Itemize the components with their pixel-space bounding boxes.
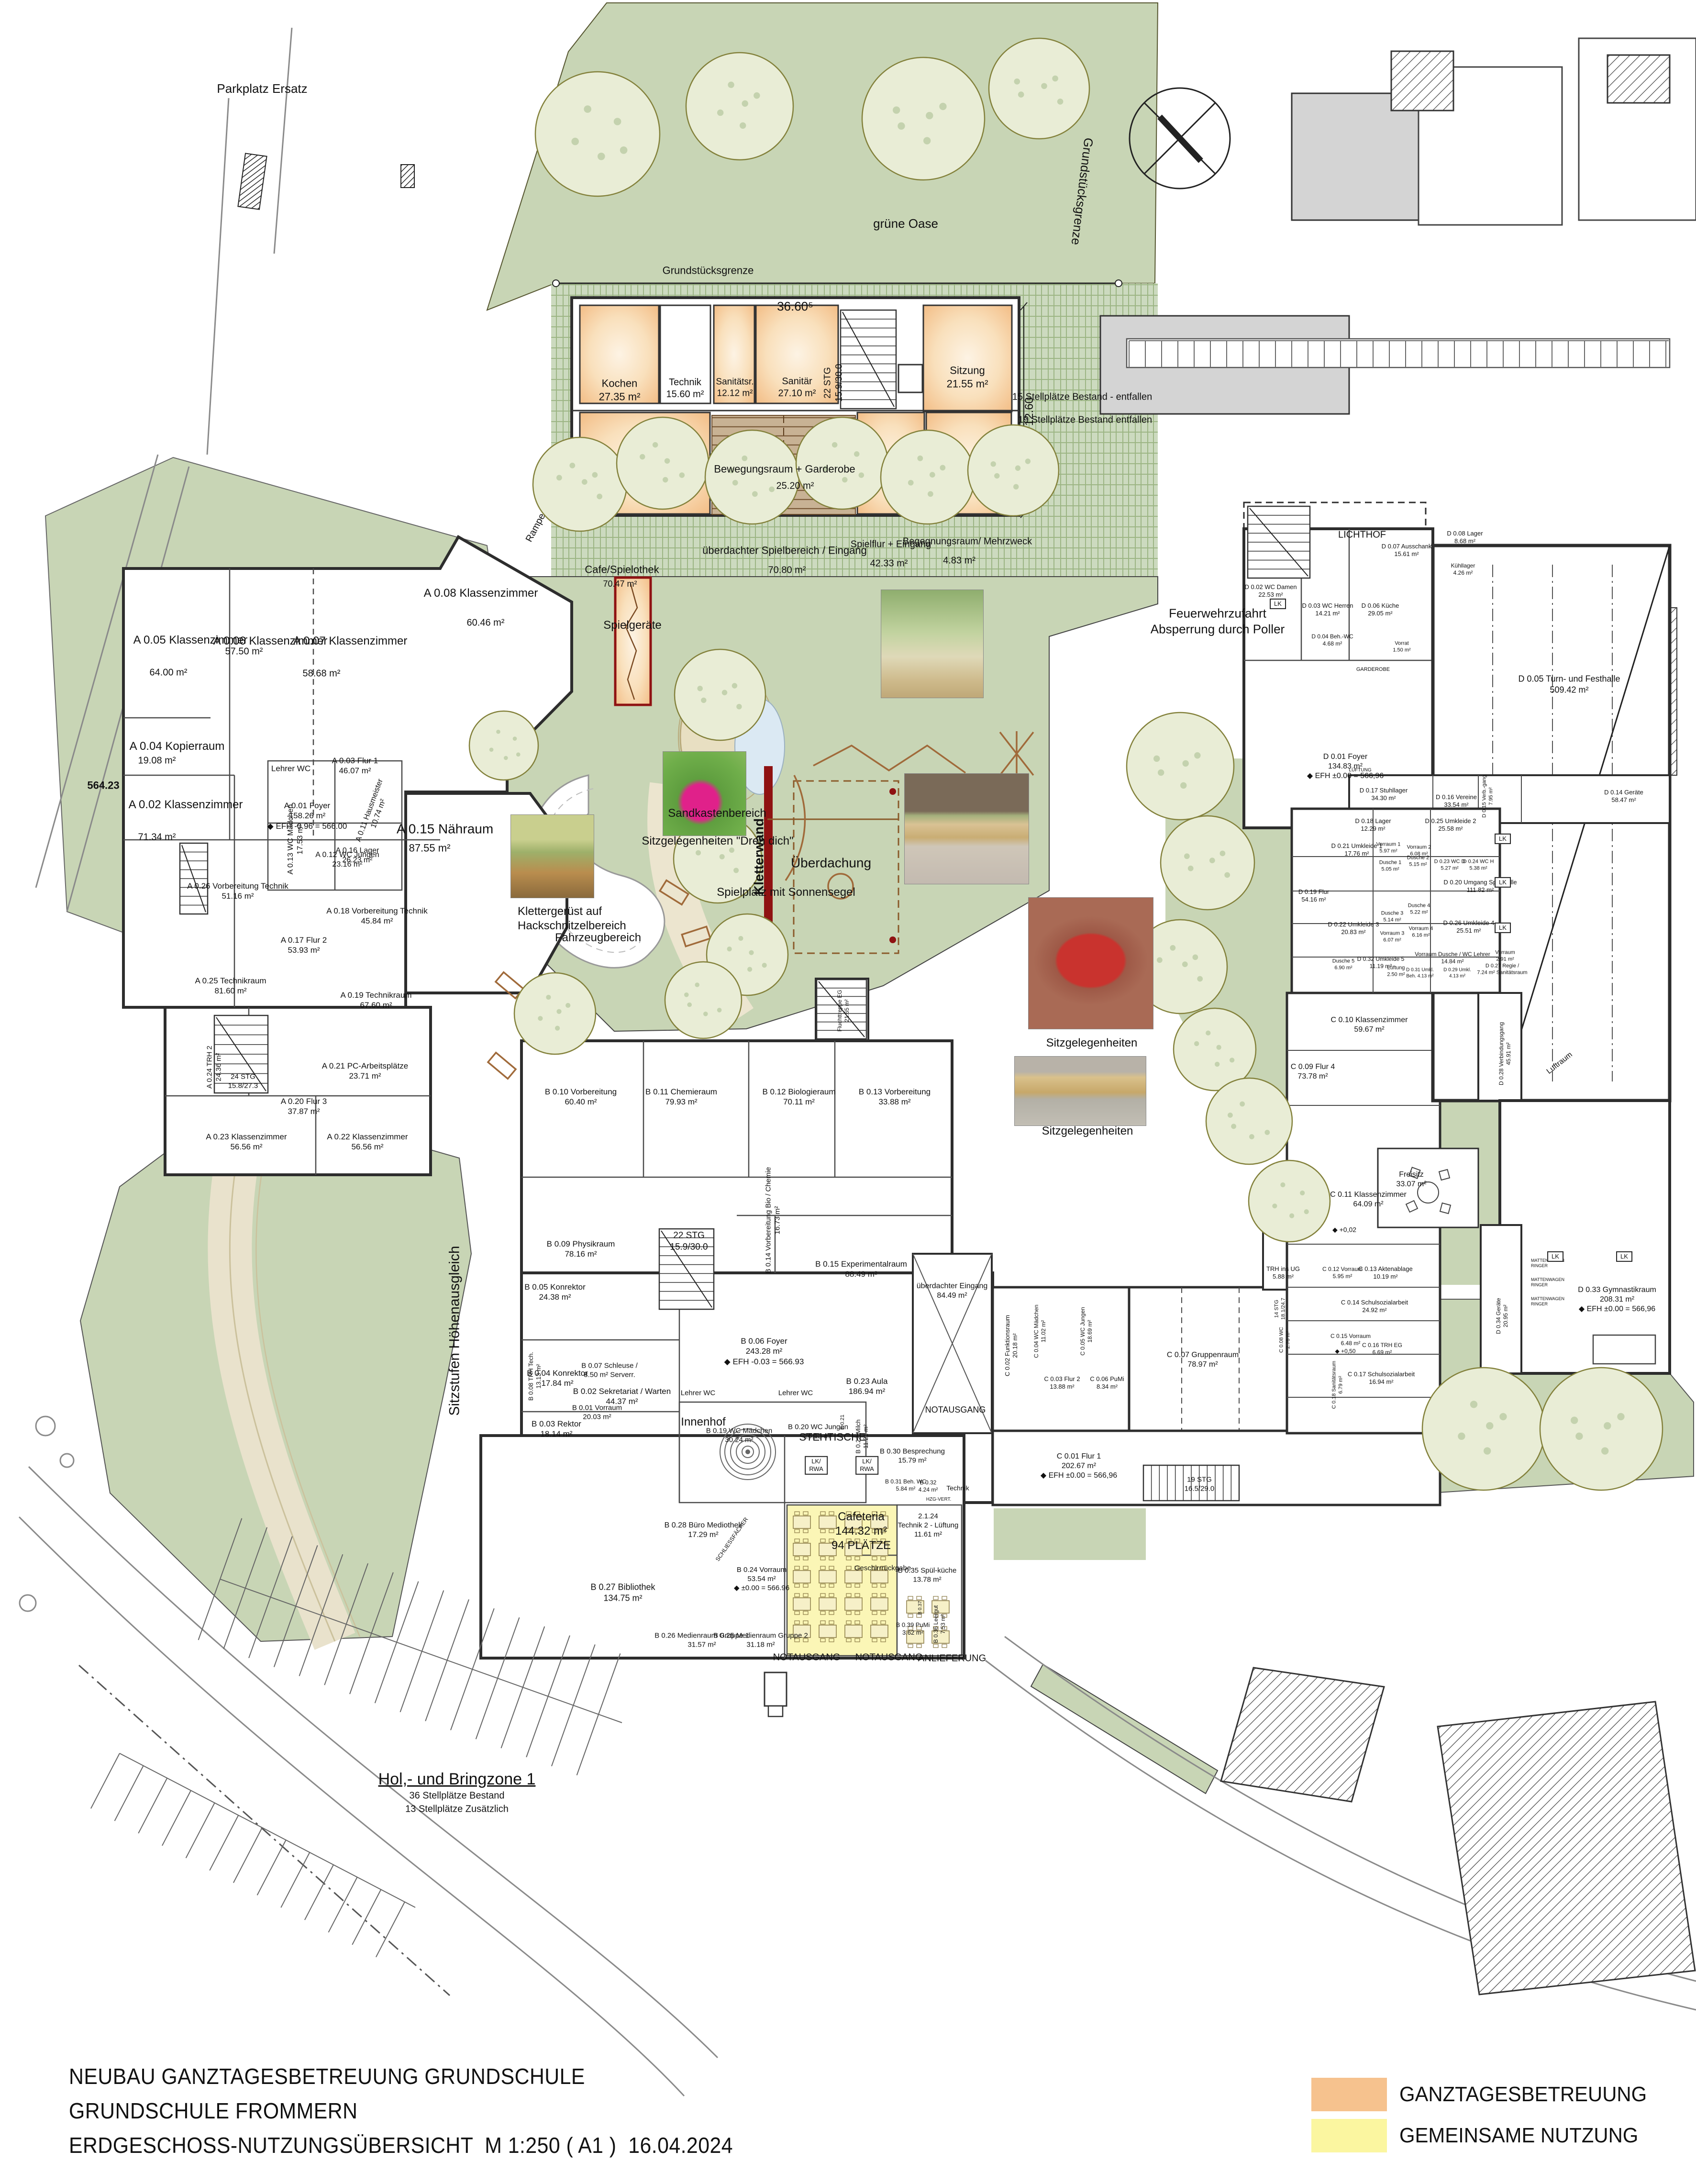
dusche-3: Dusche 3 5.14 m² xyxy=(1381,910,1403,924)
gtb-ueberdachter-m2: 70.80 m² xyxy=(768,565,806,577)
stair-icon xyxy=(841,310,896,409)
b-stg22: 22 STG 15.9/30.0 xyxy=(670,1230,708,1253)
lk-rwa-1: LK/ RWA xyxy=(805,1456,828,1475)
photo-baenke-2 xyxy=(1014,1056,1146,1126)
legend-label-gemeinsame-nutzung: GEMEINSAME NUTZUNG xyxy=(1399,2124,1638,2148)
tree-icon xyxy=(665,962,742,1038)
lk-rwa-2: LK/ RWA xyxy=(855,1456,878,1475)
c006: C 0.06 PuMi 8.34 m² xyxy=(1090,1375,1124,1391)
technik2: 2.1.24 Technik 2 - Lüftung 11.61 m² xyxy=(898,1512,959,1539)
b027: B 0.27 Bibliothek 134.75 m² xyxy=(590,1582,655,1604)
photo-klettergeruest xyxy=(510,814,594,898)
a004: A 0.04 Kopierraum xyxy=(130,739,225,754)
d001: D 0.01 Foyer 134.83 m² ◆ EFH ±0.00 = 566… xyxy=(1307,752,1384,781)
c-stg19: 19 STG 16.5/29.0 xyxy=(1185,1475,1215,1493)
a004-m2: 19.08 m² xyxy=(138,755,176,767)
hoehe-564: 564.23 xyxy=(87,779,119,792)
kletterwand: Kletterwand xyxy=(751,818,767,895)
lk-5: LK xyxy=(1616,1251,1632,1262)
d008: D 0.08 Lager 8.68 m² xyxy=(1447,530,1483,546)
d029: D 0.29 Umkl. 4.13 m² xyxy=(1443,968,1471,980)
b024: B 0.24 Vorraum 53.54 m² ◆ ±0.00 = 566.96 xyxy=(734,1566,789,1593)
a020: A 0.20 Flur 3 37.87 m² xyxy=(281,1096,327,1117)
a023: A 0.23 Klassenzimmer 56.56 m² xyxy=(206,1132,287,1152)
gtb-kochen: Kochen 27.35 m² xyxy=(599,377,641,403)
tree-icon xyxy=(1161,816,1254,910)
stellplaetze-15: 15 Stellplätze Bestand - entfallen xyxy=(1012,391,1152,403)
b012: B 0.12 Biologieraum 70.11 m² xyxy=(762,1087,835,1107)
d017: D 0.17 Stuhllager 34.30 m² xyxy=(1360,787,1408,802)
a022: A 0.22 Klassenzimmer 56.56 m² xyxy=(327,1132,408,1152)
c011: C 0.11 Klassenzimmer 64.09 m² xyxy=(1330,1190,1407,1209)
vorraum-4: Vorraum 4 6.16 m² xyxy=(1409,925,1433,939)
a005-m2: 64.00 m² xyxy=(150,667,188,679)
hzg-vert: HZG-VERT. xyxy=(926,1497,952,1503)
plan-drawing xyxy=(0,0,1696,2184)
d033: D 0.33 Gymnastikraum 208.31 m² ◆ EFH ±0.… xyxy=(1578,1285,1656,1314)
notausgang-3: NOTAUSGANG xyxy=(925,1404,986,1415)
c009: C 0.09 Flur 4 73.78 m² xyxy=(1291,1062,1335,1081)
tree-icon xyxy=(686,53,793,160)
sitzgelegenheiten-2: Sitzgelegenheiten xyxy=(1042,1124,1133,1138)
dim-36-60: 36.60⁵ xyxy=(777,299,813,314)
a007-m2: 58.68 m² xyxy=(303,668,341,680)
b007: B 0.07 Schleuse / 8.50 m² Serverr. xyxy=(581,1361,638,1380)
parkplatz-ersatz: Parkplatz Ersatz xyxy=(217,81,307,97)
d016: D 0.16 Vereine 33.54 m² xyxy=(1436,793,1477,809)
feuerwehrzufahrt: Feuerwehrzufahrt Absperrung durch Poller xyxy=(1151,606,1285,637)
lueftung-d: LÜFTUNG xyxy=(1349,768,1371,774)
a002: A 0.02 Klassenzimmer xyxy=(129,798,243,812)
a024: A 0.24 TRH 2 24.36 m² xyxy=(205,1046,223,1089)
lk-1: LK xyxy=(1495,834,1511,844)
dusche-2: Dusche 2 5.15 m² xyxy=(1407,855,1429,868)
b-lehrerwc-1: Lehrer WC xyxy=(681,1389,716,1398)
a008-m2: 60.46 m² xyxy=(467,617,505,629)
a021: A 0.21 PC-Arbeitsplätze 23.71 m² xyxy=(322,1061,408,1081)
a001: A 0.01 Foyer 158.26 m² ◆ EFH -0.96 = 566… xyxy=(267,801,347,831)
lueftung-2: Lüftung 2.50 m² xyxy=(1387,965,1405,978)
plus-0-02: ◆ +0,02 xyxy=(1332,1226,1356,1234)
d027: D 0.27 Regie / 7.24 m² Sanitätsraum xyxy=(1477,963,1527,976)
d007: D 0.07 Ausschank 15.61 m² xyxy=(1382,543,1432,558)
trh-ins-ug: TRH ins UG 5.88 m² xyxy=(1266,1265,1300,1281)
d005: D 0.05 Turn- und Festhalle 509.42 m² xyxy=(1518,674,1620,695)
tree-icon xyxy=(968,425,1059,516)
gruene-oase: grüne Oase xyxy=(873,216,938,232)
c016: C 0.16 TRH EG 6.69 m² xyxy=(1362,1342,1402,1356)
b003: B 0.03 Rektor 18.14 m² xyxy=(532,1419,581,1439)
c018: C 0.18 Sanitätsraum 6.79 m² xyxy=(1331,1361,1344,1409)
tree-icon xyxy=(1206,1078,1292,1164)
tree-icon xyxy=(1127,713,1234,820)
hatched-parcels xyxy=(765,1668,1695,1995)
b010: B 0.10 Vorbereitung 60.40 m² xyxy=(545,1087,617,1107)
kuehllager: Kühllager 4.26 m² xyxy=(1451,562,1475,577)
anlieferung: ANLIEFERUNG xyxy=(918,1653,986,1665)
a-stg24: 24 STG 15.8/27.3 xyxy=(228,1072,258,1091)
site-plan-sheet: Parkplatz Ersatzgrüne OaseGrundstücksgre… xyxy=(0,0,1696,2184)
c005: C 0.05 WC Jungen 18.69 m² xyxy=(1079,1307,1094,1355)
a016: A 0.16 Lager 26.23 m² xyxy=(336,846,379,865)
vorraum-sm: Vorraum 2.91 m² xyxy=(1495,949,1515,963)
c013: C 0.13 Aktenablage 10.19 m² xyxy=(1358,1265,1412,1281)
ueberdachter-eingang: überdachter Eingang 84.49 m² xyxy=(917,1281,988,1301)
photo-rundbank xyxy=(1028,897,1153,1029)
d019: D 0.19 Flur 54.16 m² xyxy=(1298,888,1329,904)
truck-icon xyxy=(765,1672,787,1706)
c007: C 0.07 Gruppenraum 78.97 m² xyxy=(1167,1350,1239,1370)
stellplaetze-13: 13 Stellplätze Zusätzlich xyxy=(405,1804,509,1816)
photo-baenke-1 xyxy=(904,773,1029,884)
b023: B 0.23 Aula 186.94 m² xyxy=(846,1376,888,1397)
title-line-2: GRUNDSCHULE FROMMERN xyxy=(69,2098,357,2124)
legend-label-ganztagesbetreuung: GANZTAGESBETREUUNG xyxy=(1399,2083,1647,2106)
tree-icon xyxy=(469,711,538,780)
d004: D 0.04 Beh.-WC 4.68 m² xyxy=(1311,633,1353,647)
tree-icon xyxy=(1540,1368,1663,1490)
lichthof: LICHTHOF xyxy=(1338,529,1386,541)
gtb-cafe-m2: 70.47 m² xyxy=(603,579,637,590)
c008: C 0.08 WC 2.76 m² xyxy=(1278,1327,1292,1353)
lk-6: LK xyxy=(1270,599,1286,609)
mattenwagen-3: MATTENWAGEN RINGER xyxy=(1531,1296,1564,1307)
dusche-5: Dusche 5 6.90 m² xyxy=(1332,958,1354,971)
b014: B 0.14 Vorbereitung Bio / Chemie 16.73 m… xyxy=(764,1167,782,1274)
b011: B 0.11 Chemieraum 79.93 m² xyxy=(645,1087,717,1107)
b009: B 0.09 Physikraum 78.16 m² xyxy=(547,1239,615,1259)
photo-drehdich xyxy=(663,751,746,836)
d021: D 0.21 Umkleide 1 17.76 m² xyxy=(1331,842,1383,858)
d003: D 0.03 WC Herren 14.21 m² xyxy=(1302,602,1353,618)
tree-icon xyxy=(514,973,596,1054)
d034: D 0.34 Geräte 20.95 m² xyxy=(1495,1298,1509,1334)
stair-icon xyxy=(180,843,208,914)
vorraum-1: Vorraum 1 5.97 m² xyxy=(1376,841,1401,855)
b013: B 0.13 Vorbereitung 33.88 m² xyxy=(859,1087,931,1107)
b021: B 0.21 xyxy=(840,1415,846,1430)
a008: A 0.08 Klassenzimmer xyxy=(424,586,538,601)
a015: A 0.15 Nähraum xyxy=(397,821,493,837)
c017: C 0.17 Schulsozialarbeit 16.94 m² xyxy=(1348,1371,1415,1386)
sitzgelegenheiten-1: Sitzgelegenheiten xyxy=(1046,1036,1138,1050)
a002-m2: 71.34 m² xyxy=(138,832,176,844)
tree-icon xyxy=(705,430,799,524)
gtb-spielflur-m2: 42.33 m² xyxy=(870,558,908,570)
d014: D 0.14 Geräte 58.47 m² xyxy=(1604,789,1643,804)
freisitz-terrace xyxy=(1378,1148,1478,1227)
c-stg14: 14 STG 18.1/24.7 xyxy=(1274,1298,1287,1320)
b-lehrerwc-2: Lehrer WC xyxy=(778,1389,813,1398)
vorrat: Vorrat 1.50 m² xyxy=(1393,640,1410,654)
d024: D 0.24 WC H 5.38 m² xyxy=(1463,858,1494,872)
d018: D 0.18 Lager 12.29 m² xyxy=(1355,817,1391,833)
gtb-stg22: 22 STG 15.9/30.0 xyxy=(822,364,845,401)
b032: B 0.32 4.24 m² xyxy=(919,1479,938,1493)
d015: D 0.15 Verb.-gang 7.95 m² xyxy=(1481,775,1495,817)
title-line-3: ERDGESCHOSS-NUTZUNGSÜBERSICHT M 1:250 ( … xyxy=(69,2132,733,2158)
d026: D 0.26 Umkleide 4 25.51 m² xyxy=(1443,919,1495,935)
dusche-4: Dusche 4 5.22 m² xyxy=(1408,903,1430,916)
tree-icon xyxy=(989,38,1089,139)
d006: D 0.06 Küche 29.05 m² xyxy=(1362,602,1399,618)
stellplaetze-19: 19 Stellplätze Bestand entfallen xyxy=(1018,414,1152,426)
b004: B 0.04 Konrektor 17.84 m² xyxy=(527,1368,588,1389)
tree-icon xyxy=(862,57,985,180)
spielgeraete: Spielgeräte xyxy=(603,618,661,633)
plus-0-50: ◆ +0,50 xyxy=(1335,1348,1356,1355)
ueberdachung: Überdachung xyxy=(791,855,871,871)
spielplatz-sonnensegel: Spielplatz mit Sonnensegel xyxy=(717,885,855,900)
gtb-bewegungsraum: Bewegungsraum + Garderobe xyxy=(714,462,855,476)
stall-row xyxy=(91,1753,415,1957)
b037: B 0.37 xyxy=(918,1601,924,1615)
a-lehrer-wc: Lehrer WC xyxy=(271,763,310,773)
c012: C 0.12 Vorraum 5.95 m² xyxy=(1322,1266,1363,1280)
b035: B 0.35 Spül-küche 13.78 m² xyxy=(898,1566,957,1584)
b002: B 0.02 Sekretariat / Warten 44.37 m² xyxy=(573,1386,671,1407)
grundstuecksgrenze-h: Grundstücksgrenze xyxy=(663,264,754,277)
gtb-technik: Technik 15.60 m² xyxy=(666,377,704,401)
b006: B 0.06 Foyer 243.28 m² ◆ EFH -0.03 = 566… xyxy=(724,1336,804,1367)
tree-icon xyxy=(617,417,709,509)
b025: B 0.25 Medienraum Gruppe 2 31.18 m² xyxy=(713,1631,808,1649)
tree-icon xyxy=(535,72,660,196)
a003: A 0.03 Flur 1 46.07 m² xyxy=(332,756,378,776)
a015-m2: 87.55 m² xyxy=(409,841,451,855)
a019: A 0.19 Technikraum 67.60 m² xyxy=(341,990,412,1011)
gtb-cafe: Cafe/Spielothek xyxy=(585,563,659,576)
gtb-bewegungsraum-m2: 25.20 m² xyxy=(776,480,814,492)
c004: C 0.04 WC Mädchen 11.02 m² xyxy=(1033,1304,1047,1358)
a017: A 0.17 Flur 2 53.93 m² xyxy=(281,935,327,956)
gtb-begegnungsraum-m2: 4.83 m² xyxy=(943,555,975,567)
lk-3: LK xyxy=(1495,923,1511,933)
a026: A 0.26 Vorbereitung Technik 51.16 m² xyxy=(187,881,288,902)
c003: C 0.03 Flur 2 13.88 m² xyxy=(1044,1375,1080,1391)
title-line-1: NEUBAU GANZTAGESBETREUUNG GRUNDSCHULE xyxy=(69,2063,585,2089)
stair-icon xyxy=(1248,506,1310,578)
legend-swatch-ganztagesbetreuung xyxy=(1311,2078,1387,2111)
lk-4: LK xyxy=(1547,1251,1563,1262)
gtb-sitzung: Sitzung 21.55 m² xyxy=(947,364,988,390)
notausgang-1: NOTAUSGANG xyxy=(773,1652,841,1664)
freisitz: Freisitz 33.07 m² xyxy=(1396,1170,1426,1189)
c001: C 0.01 Flur 1 202.67 m² ◆ EFH ±0.00 = 56… xyxy=(1041,1452,1117,1481)
garderobe: GARDEROBE xyxy=(1356,667,1390,673)
b030: B 0.30 Besprechung 15.79 m² xyxy=(880,1447,945,1465)
b036: B 0.36 Leergut 7.53 m² xyxy=(932,1605,947,1643)
b015: B 0.15 Experimentalraum 88.49 m² xyxy=(815,1259,907,1280)
tree-icon xyxy=(881,430,975,524)
mattenwagen-2: MATTENWAGEN RINGER xyxy=(1531,1277,1564,1288)
a025: A 0.25 Technikraum 81.60 m² xyxy=(195,976,266,996)
d002: D 0.02 WC Damen 22.53 m² xyxy=(1244,583,1297,599)
innenhof: Innenhof xyxy=(681,1415,725,1429)
vorraum-3: Vorraum 3 6.07 m² xyxy=(1380,930,1405,944)
photo-spielplatz xyxy=(881,590,984,698)
c002: C 0.02 Funktionsraum 20.18 m² xyxy=(1004,1315,1020,1376)
tree-icon xyxy=(675,649,765,740)
d028: D 0.28 Verbindungsgang 45.91 m² xyxy=(1498,1022,1512,1085)
b-technik: Technik xyxy=(946,1484,969,1493)
stellplaetze-36: 36 Stellplätze Bestand xyxy=(409,1790,504,1802)
legend-swatch-gemeinsame-nutzung xyxy=(1311,2119,1387,2152)
gtb-sanitaer: Sanitär 27.10 m² xyxy=(778,376,816,400)
d023: D 0.23 WC D 5.27 m² xyxy=(1434,858,1465,872)
a018: A 0.18 Vorbereitung Technik 45.84 m² xyxy=(326,906,427,926)
fluchttreppe: Fluchttreppe EG 21.65 m² xyxy=(836,990,851,1031)
a006-m2: 57.50 m² xyxy=(225,646,263,658)
c010: C 0.10 Klassenzimmer 59.67 m² xyxy=(1331,1015,1408,1035)
b005: B 0.05 Konrektor 24.38 m² xyxy=(524,1282,586,1303)
d022: D 0.22 Umkleide 3 20.83 m² xyxy=(1328,921,1379,936)
gtb-ueberdachter-spielbereich: überdachter Spielbereich / Eingang xyxy=(702,544,867,557)
gtb-begegnungsraum: Begegnungsraum/ Mehrzweck xyxy=(903,536,1032,548)
sitzstufen: Sitzstufen Höhenausgleich xyxy=(445,1246,464,1415)
spielgeraete-box xyxy=(615,578,651,705)
cafeteria: Cafeteria 144.32 m² 94 PLÄTZE xyxy=(831,1510,891,1553)
tree-icon xyxy=(1249,1160,1330,1242)
sitzgelegenheiten-drehdich: Sitzgelegenheiten "Dreh dich" xyxy=(642,834,793,848)
gtb-sanitaetsr: Sanitätsr. 12.12 m² xyxy=(716,376,754,399)
lk-2: LK xyxy=(1495,877,1511,888)
c014: C 0.14 Schulsozialarbeit 24.92 m² xyxy=(1341,1299,1408,1315)
d031: D 0.31 Umkl. Beh. 4.13 m² xyxy=(1406,968,1434,980)
a007: A 0.07 Klassenzimmer xyxy=(293,634,408,648)
hol-bringzone: Hol,- und Bringzone 1 xyxy=(378,1769,536,1790)
d025: D 0.25 Umkleide 2 25.58 m² xyxy=(1425,817,1476,833)
b039: B 0.39 PuMi 3.62 m² xyxy=(896,1621,930,1637)
dusche-1: Dusche 1 5.05 m² xyxy=(1379,859,1401,873)
tree-icon xyxy=(1422,1368,1545,1490)
stehtische: STEHTISCHE xyxy=(799,1430,865,1444)
notausgang-2: NOTAUSGANG xyxy=(855,1652,923,1664)
klettergeruest: Klettergerüst auf Hackschnitzelbereich xyxy=(518,904,626,933)
